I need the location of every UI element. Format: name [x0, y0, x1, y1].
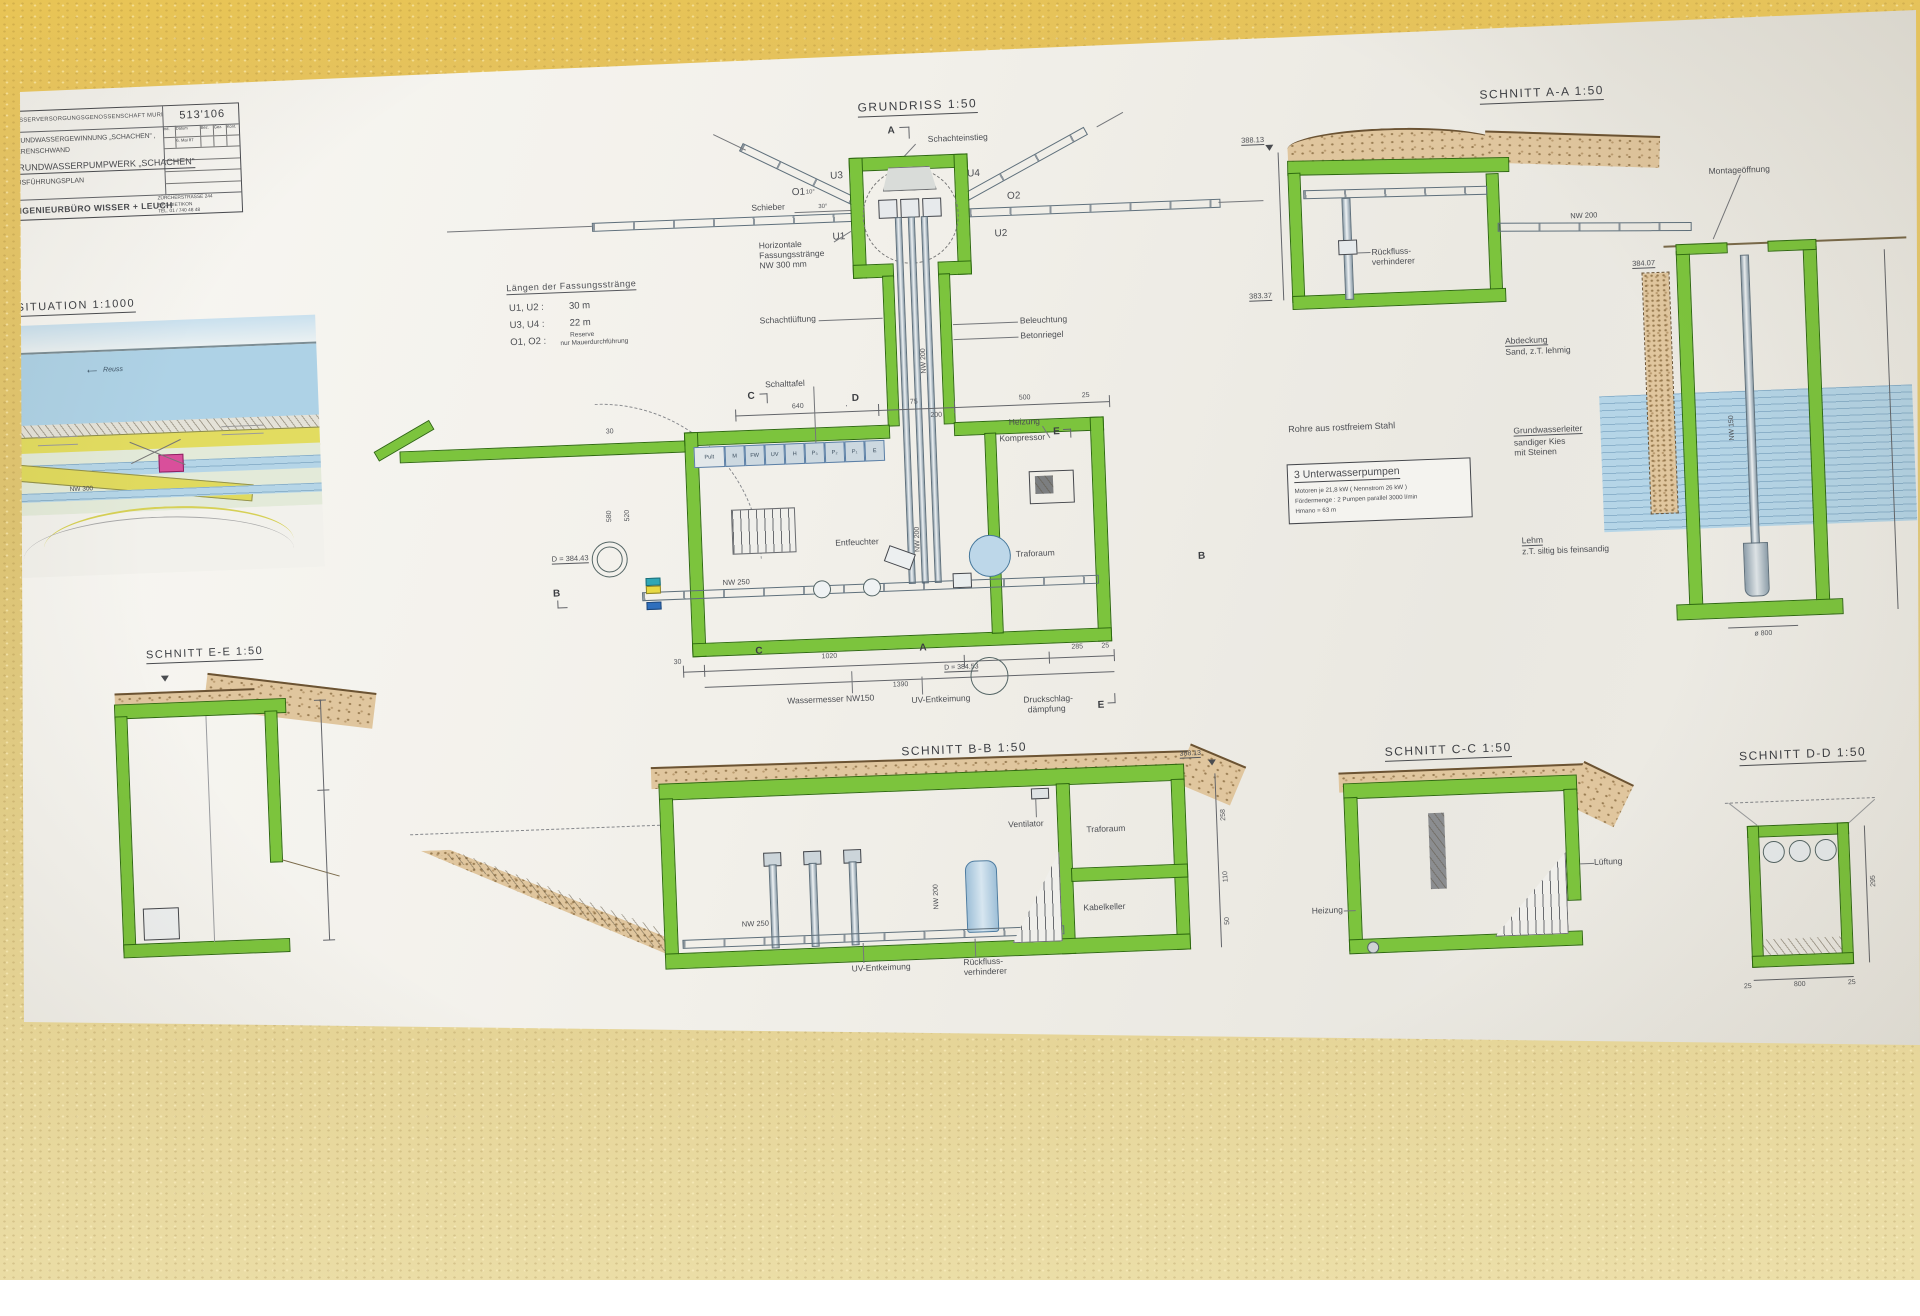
firm-addr1: ZÜRCHERSTRASSE 244	[157, 194, 212, 201]
pump-data-line1: Motoren je 21,8 kW ( Nennstrom 26 kW )	[1294, 484, 1407, 495]
strand-u2-label: U2	[994, 228, 1007, 239]
betonriegel-label: Betonriegel	[1020, 329, 1063, 341]
gwl-label1: Grundwasserleiter	[1513, 423, 1582, 437]
corridor-nw200-label: NW 200	[920, 348, 928, 374]
horizontale-label3: NW 300 mm	[759, 259, 807, 271]
situation-graphic: ⟵ Reuss NW 300 ➤	[5, 315, 324, 579]
cc-heizung-label: Heizung	[1312, 905, 1344, 916]
cc-lueftung-label: Lüftung	[1594, 856, 1623, 867]
aa-elev-38337: 383.37	[1249, 291, 1272, 302]
aa-nw200-label: NW 200	[1570, 210, 1597, 220]
section-mark-c-bottom: C	[755, 646, 763, 657]
lehm-label1: Lehm	[1521, 535, 1543, 547]
schalttafel-panel: Pult M FW UV H P₃ P₂ P₁ E	[693, 440, 885, 468]
ee-equipment	[143, 907, 180, 940]
aa-elev-38407: 384.07	[1632, 258, 1655, 269]
bb-dim-50: 50	[1224, 917, 1231, 925]
bb-traforaum-label: Traforaum	[1086, 823, 1125, 834]
pump-symbol-2	[863, 578, 882, 597]
bb-ventilator-label: Ventilator	[1008, 818, 1044, 829]
strand-u4-label: U4	[967, 168, 980, 179]
section-mark-d-top: D	[852, 393, 860, 404]
section-mark-b-right: B	[1198, 551, 1206, 562]
shaft-cover	[882, 166, 937, 192]
revision-date: 6. Mai 87	[176, 136, 201, 147]
doc-type: AUSFÜHRUNGSPLAN	[12, 177, 85, 187]
dim-580: 580	[606, 510, 613, 522]
uv-unit-plan	[953, 573, 973, 589]
schnitt-dd-title: SCHNITT D-D 1:50	[1739, 744, 1867, 766]
schalttafel-label: Schalttafel	[765, 378, 805, 390]
tiny-label-left	[38, 436, 78, 447]
dim-200: 200	[930, 412, 942, 419]
pipe-nw300-label: NW 300	[70, 485, 94, 493]
dd-dim-295: 295	[1870, 875, 1877, 887]
strand-u3-label: U3	[830, 170, 843, 181]
dim-640: 640	[792, 403, 804, 410]
situation-title: SITUATION 1:1000	[16, 297, 135, 317]
bb-nw250-label: NW 250	[742, 919, 769, 929]
schnitt-ee-title: SCHNITT E-E 1:50	[146, 645, 264, 664]
dim-25: 25	[1082, 392, 1090, 399]
beleuchtung-label: Beleuchtung	[1020, 314, 1068, 326]
schnitt-aa: SCHNITT A-A 1:50 388.13 383.37 Rückfluss…	[1237, 68, 1920, 703]
gwl-label3: mit Steinen	[1514, 446, 1557, 458]
pump-data-box: 3 Unterwasserpumpen Motoren je 21,8 kW (…	[1287, 457, 1473, 524]
uv-entkeimung-label: UV-Entkeimung	[911, 693, 970, 705]
dd-pipe-3	[1814, 839, 1837, 862]
plan-number: 513'106	[179, 108, 225, 122]
dim-520: 520	[624, 510, 631, 522]
druckschlag-vessel	[970, 656, 1009, 695]
wassermesser-label: Wassermesser NW150	[787, 692, 874, 705]
lehm-label2: z.T. siltig bis feinsandig	[1522, 543, 1609, 556]
plan-nw250-label: NW 250	[723, 577, 750, 587]
aa-dia800: ø 800	[1754, 630, 1772, 638]
aa-nw200-pipe	[1498, 222, 1692, 232]
stairs-plan	[731, 507, 797, 554]
bb-elev-38813: 388.13	[1179, 750, 1201, 759]
bb-nw200-label: NW 200	[932, 884, 940, 910]
river-label: Reuss	[103, 366, 123, 374]
bb-dim-258: 258	[1220, 809, 1227, 821]
grundriss-title: GRUNDRISS 1:50	[857, 96, 977, 118]
schnitt-cc: SCHNITT C-C 1:50 Lüftung Heizung	[1297, 729, 1651, 982]
strand-o1-label: O1	[792, 187, 806, 199]
dim-1020: 1020	[821, 653, 837, 661]
schachteinstieg-label: Schachteinstieg	[928, 132, 988, 144]
dd-pipe-2	[1788, 840, 1811, 863]
river-flow-arrow: ⟵	[87, 367, 97, 375]
dd-pipe-1	[1762, 841, 1785, 864]
angle-10: 10°	[806, 189, 815, 195]
schachtlueftung-label: Schachtlüftung	[759, 313, 816, 325]
section-mark-e-right: E	[1053, 426, 1060, 437]
manhole-elev-label: D = 384.43	[551, 553, 588, 564]
submersible-pump	[1743, 542, 1770, 597]
schieber-label: Schieber	[751, 201, 785, 212]
aa-check-valve	[1338, 240, 1358, 256]
firm-name: INGENIEURBÜRO WISSER + LEUCH	[13, 200, 173, 216]
schnitt-cc-title: SCHNITT C-C 1:50	[1384, 740, 1512, 762]
strand-u1-pipe	[592, 213, 854, 232]
section-mark-a-top: A	[887, 125, 895, 136]
angle-30: 30°	[818, 204, 827, 210]
dim-1390: 1390	[893, 681, 909, 689]
entfeuchter-label: Entfeuchter	[835, 536, 879, 548]
rohre-note: Rohre aus rostfreiem Stahl	[1288, 420, 1395, 434]
section-mark-a-bottom: A	[919, 642, 927, 653]
bb-kabelkeller-label: Kabelkeller	[1083, 901, 1125, 913]
aa-rueckfluss-label2: verhinderer	[1372, 255, 1415, 267]
aa-elev-38813: 388.13	[1241, 135, 1264, 146]
dim-25b: 25	[1101, 642, 1109, 649]
tiny-label-right	[221, 425, 263, 436]
pump-data-line3: Hmano = 63 m	[1295, 507, 1336, 516]
bb-windkessel	[965, 860, 1000, 933]
dim-285: 285	[1071, 643, 1083, 650]
bb-rueckfluss-label2: verhinderer	[964, 966, 1007, 978]
dd-dim-25r: 25	[1848, 979, 1856, 986]
section-mark-e-bottom: E	[1097, 700, 1104, 711]
schnitt-dd: SCHNITT D-D 1:50 25 800 25 295	[1732, 733, 1920, 1010]
schnitt-aa-title: SCHNITT A-A 1:50	[1479, 83, 1604, 105]
strand-o2-label: O2	[1007, 190, 1021, 202]
panel-cell-pult: Pult	[693, 446, 725, 468]
windkessel-plan	[968, 534, 1012, 578]
dim-500: 500	[1019, 394, 1031, 401]
pump-data-line2: Fördermenge : 2 Pumpen parallel 3000 l/m…	[1295, 493, 1418, 505]
dd-dim-25l: 25	[1744, 983, 1752, 990]
firm-addr3: TEL. 01 / 740 48 48	[158, 208, 200, 215]
plan-nw200-label: NW 200	[914, 526, 922, 552]
org-name: WASSERVERSORGUNGSGENOSSENSCHAFT MURI	[9, 112, 163, 124]
bb-dim-110: 110	[1222, 871, 1229, 882]
traforaum-plan-label: Traforaum	[1016, 547, 1055, 558]
section-mark-c-top: C	[747, 391, 755, 402]
schnitt-bb: SCHNITT B-B 1:50 Ventilator Traforaum Ka…	[407, 723, 1286, 1006]
druckschlag-label2: dämpfung	[1028, 703, 1066, 714]
pump-data-heading: 3 Unterwasserpumpen	[1294, 465, 1400, 483]
bb-uv-label: UV-Entkeimung	[851, 961, 910, 973]
dim-75: 75	[910, 399, 918, 406]
dim-30: 30	[606, 428, 614, 435]
heizung-plan-label: Heizung	[1009, 416, 1041, 427]
cc-heater	[1428, 813, 1447, 890]
title-block: WASSERVERSORGUNGSGENOSSENSCHAFT MURI 513…	[3, 102, 243, 221]
kompressor-plan-label: Kompressor	[999, 432, 1045, 444]
project-line1: GRUNDWASSERGEWINNUNG „SCHACHEN“ ,	[10, 133, 156, 146]
situation-map: SITUATION 1:1000 ⟵ Reuss NW 300 ➤	[4, 279, 325, 591]
abdeckung-label2: Sand, z.T. lehmig	[1505, 344, 1571, 356]
pump-symbol-1	[813, 580, 832, 599]
cc-stairs	[1492, 852, 1569, 937]
schnitt-ee: SCHNITT E-E 1:50	[108, 637, 391, 987]
aa-nw150-label: NW 150	[1728, 415, 1736, 441]
section-mark-b-left: B	[553, 588, 561, 599]
grundriss-plan: GRUNDRISS 1:50 A Schachteinstieg U3 O1 1…	[382, 73, 1286, 756]
bb-ventilator-unit	[1031, 788, 1049, 800]
dim-30b: 30	[674, 659, 682, 666]
dd-dim-800: 800	[1794, 981, 1806, 988]
